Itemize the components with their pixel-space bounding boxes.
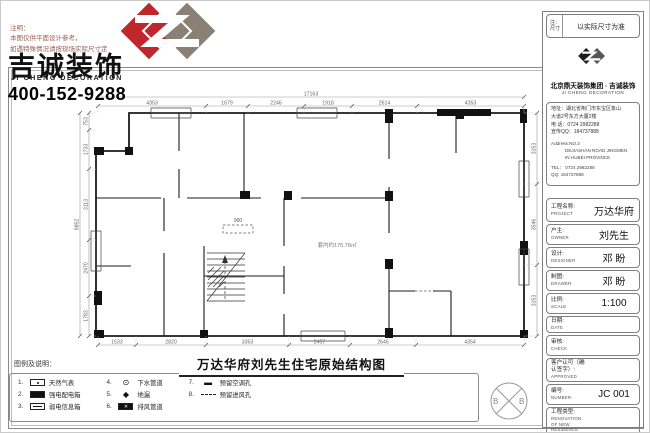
drain-pipe-icon: ⊙ bbox=[118, 379, 133, 386]
legend-item-label: 预留进风孔 bbox=[220, 390, 251, 399]
field-value: 刘先生 bbox=[589, 227, 639, 242]
titleblock-field: 审核:CHECK bbox=[546, 335, 640, 356]
titleblock-field: 工程名称:PROJECT万达华府 bbox=[546, 198, 640, 222]
ac-hole-icon: ▬ bbox=[201, 379, 216, 386]
dim-label: 3113 bbox=[84, 199, 90, 210]
titleblock-field: 日期:DATE bbox=[546, 316, 640, 333]
titleblock-note: 注：尺寸 以实际尺寸为准 bbox=[546, 14, 640, 38]
legend-column: 4.⊙下水管道5.◆地漏6.✕排风管道 bbox=[106, 378, 162, 421]
tel-en-line: TEL： 0724 2982288 bbox=[551, 164, 635, 171]
qq-line: 宣传QQ：184737888 bbox=[551, 129, 635, 137]
dim-label: 1733 bbox=[84, 144, 90, 156]
legend-item-label: 地漏 bbox=[137, 390, 150, 399]
dim-label: 4353 bbox=[465, 101, 477, 107]
legend-item-label: 排风管道 bbox=[137, 402, 162, 411]
floor-drain-icon: ◆ bbox=[118, 391, 133, 398]
titleblock-logo: 北京鼎天装饰集团 · 吉诚装饰 JI CHENG DECORATION bbox=[543, 40, 643, 100]
field-label-en: RENOVATION OF NEW RESIDENCE bbox=[551, 416, 589, 433]
dimension-layer: 4353167922461918261443531533282033532457… bbox=[75, 92, 540, 348]
titleblock-field: 设计:DESIGNER邓 盼 bbox=[546, 247, 640, 268]
legend-item-number: 5. bbox=[106, 391, 114, 398]
dim-label: 2614 bbox=[379, 101, 391, 107]
note-label: 注：尺寸 bbox=[547, 15, 563, 37]
field-label-en: DESIGNER bbox=[551, 258, 589, 264]
field-label-en: DATE bbox=[551, 325, 589, 331]
field-label: 工程类型:RENOVATION OF NEW RESIDENCE bbox=[547, 407, 589, 433]
exhaust-duct-icon: ✕ bbox=[118, 403, 133, 410]
dim-label: 17163 bbox=[304, 92, 319, 98]
info-box-icon bbox=[30, 403, 45, 410]
group-name: 北京鼎天装饰集团 · 吉诚装饰 bbox=[543, 80, 643, 90]
drawing-sheet: 900 套内约175.78㎡ 4353167922461918261443531… bbox=[0, 0, 650, 433]
field-label-cn: 户主: bbox=[551, 228, 589, 235]
legend-item: 8.预留进风孔 bbox=[189, 390, 251, 399]
legend-item-number: 7. bbox=[189, 379, 197, 386]
field-label-en: APPROVED bbox=[551, 374, 589, 380]
field-label: 制图:DRAWER bbox=[547, 272, 589, 288]
dim-label: 1533 bbox=[111, 340, 123, 346]
opening-dim-label: 900 bbox=[234, 218, 243, 224]
field-value: 邓 盼 bbox=[589, 250, 639, 265]
legend-item: 4.⊙下水管道 bbox=[106, 378, 162, 387]
address-line: 地址：湖北省荆门市东宝区象山 bbox=[551, 106, 635, 114]
titleblock-field: 制图:DRAWER邓 盼 bbox=[546, 270, 640, 291]
windows bbox=[91, 108, 529, 341]
dim-label: 1918 bbox=[322, 101, 334, 107]
field-value: 1:100 bbox=[589, 298, 639, 309]
field-value: 万达华府 bbox=[589, 203, 639, 218]
walls bbox=[96, 113, 524, 336]
company-logo-small-icon bbox=[576, 42, 610, 74]
legend-item: 1.天然气表 bbox=[18, 378, 80, 387]
dim-label: 2457 bbox=[314, 340, 326, 346]
field-label: 比例:SCALE bbox=[547, 295, 589, 311]
legend-item: 7.▬预留空调孔 bbox=[189, 378, 251, 387]
dim-label: 9852 bbox=[75, 219, 81, 231]
field-label-cn: 日期: bbox=[551, 318, 589, 325]
legend-item-label: 强电配电箱 bbox=[49, 390, 80, 399]
field-label-en: CHECK bbox=[551, 346, 589, 352]
legend-item-label: 弱电信息箱 bbox=[49, 402, 80, 411]
legend-item-label: 预留空调孔 bbox=[220, 378, 251, 387]
legend-column: 1.天然气表2.强电配电箱3.弱电信息箱 bbox=[18, 378, 80, 421]
legend-column: 7.▬预留空调孔8.预留进风孔 bbox=[189, 378, 251, 421]
dim-label: 4353 bbox=[146, 101, 158, 107]
field-label: 设计:DESIGNER bbox=[547, 249, 589, 265]
dim-label: 753 bbox=[84, 117, 90, 126]
power-box-icon bbox=[30, 391, 45, 398]
company-phone: 400-152-9288 bbox=[8, 84, 126, 105]
legend-item-number: 3. bbox=[18, 403, 26, 410]
field-label-cn: 编号: bbox=[551, 388, 589, 395]
dim-label: 2470 bbox=[84, 262, 90, 274]
titleblock-fields: 工程名称:PROJECT万达华府户主:OWNER刘先生设计:DESIGNER邓 … bbox=[543, 196, 643, 433]
dim-label: 2820 bbox=[165, 340, 177, 346]
legend-item-label: 天然气表 bbox=[49, 378, 74, 387]
qq-en-line: QQ: 184737888 bbox=[551, 171, 635, 178]
group-name-en: JI CHENG DECORATION bbox=[543, 90, 643, 95]
address-en-line: IN HUBEI PROVINCE bbox=[551, 154, 635, 161]
titleblock-field: 工程类型:RENOVATION OF NEW RESIDENCE bbox=[546, 407, 640, 433]
field-label: 户主:OWNER bbox=[547, 226, 589, 242]
dim-label: 2246 bbox=[270, 101, 282, 107]
field-label: 编号:NUMBER bbox=[547, 386, 589, 402]
dim-label: 3153 bbox=[532, 295, 538, 307]
legend-item: 6.✕排风管道 bbox=[106, 402, 162, 411]
titleblock-field: 编号:NUMBERJC 001 bbox=[546, 384, 640, 405]
titleblock-field: 客户认可（确认签字）:APPROVED bbox=[546, 358, 640, 382]
gas-meter-icon bbox=[30, 379, 45, 386]
dim-label: 2646 bbox=[377, 340, 389, 346]
titleblock-field: 户主:OWNER刘先生 bbox=[546, 224, 640, 245]
field-label: 工程名称:PROJECT bbox=[547, 202, 589, 218]
compass-stamp-icon: B B bbox=[487, 379, 531, 423]
title-block: 注：尺寸 以实际尺寸为准 北京鼎天装饰集团 · 吉诚装饰 JI CHENG DE… bbox=[542, 11, 644, 428]
field-label: 日期:DATE bbox=[547, 316, 589, 332]
legend-item-number: 2. bbox=[18, 391, 26, 398]
dim-label: 3546 bbox=[532, 219, 538, 231]
dashed-openings bbox=[223, 225, 433, 291]
legend-item-number: 6. bbox=[106, 403, 114, 410]
address-block: 地址：湖北省荆门市东宝区象山 大道2号东方大厦2楼 电 话：0724 29822… bbox=[546, 102, 640, 186]
legend-item: 2.强电配电箱 bbox=[18, 390, 80, 399]
field-label-cn: 比例: bbox=[551, 297, 589, 304]
address-line: 大道2号东方大厦2楼 bbox=[551, 114, 635, 122]
field-label-en: NUMBER bbox=[551, 395, 589, 401]
titleblock-field: 比例:SCALE1:100 bbox=[546, 293, 640, 314]
legend-item-number: 4. bbox=[106, 379, 114, 386]
field-label-cn: 审核: bbox=[551, 339, 589, 346]
legend-title: 图例及说明： bbox=[14, 359, 56, 369]
legend-item-number: 1. bbox=[18, 379, 26, 386]
field-value: 邓 盼 bbox=[589, 273, 639, 288]
field-label-cn: 工程名称: bbox=[551, 204, 589, 211]
field-label-en: PROJECT bbox=[551, 211, 589, 217]
address-en-line: DEJIASHAN ROAD JINGMEN bbox=[551, 147, 635, 154]
field-label-en: SCALE bbox=[551, 304, 589, 310]
legend-item-number: 8. bbox=[189, 391, 197, 398]
company-name-en: JI CHENG DECORATION bbox=[11, 75, 123, 82]
dim-label: 4354 bbox=[464, 340, 476, 346]
legend-item-label: 下水管道 bbox=[137, 378, 162, 387]
dim-label: 3353 bbox=[242, 340, 254, 346]
svg-text:B: B bbox=[493, 397, 498, 406]
field-label-cn: 制图: bbox=[551, 274, 589, 281]
svg-text:B: B bbox=[519, 397, 524, 406]
air-inlet-icon bbox=[201, 394, 216, 395]
note-value: 以实际尺寸为准 bbox=[563, 21, 639, 31]
address-en-line: Address:NO.2 bbox=[551, 140, 635, 147]
stairs bbox=[207, 253, 245, 301]
company-logo-icon bbox=[113, 3, 233, 73]
legend-box: 1.天然气表2.强电配电箱3.弱电信息箱4.⊙下水管道5.◆地漏6.✕排风管道7… bbox=[9, 373, 479, 422]
dim-label: 1783 bbox=[84, 310, 90, 322]
field-label-cn: 客户认可（确认签字）: bbox=[551, 360, 589, 374]
field-label-cn: 工程类型: bbox=[551, 409, 589, 416]
area-label: 套内约175.78㎡ bbox=[318, 241, 357, 249]
legend-item: 5.◆地漏 bbox=[106, 390, 162, 399]
dim-label: 3153 bbox=[532, 143, 538, 155]
field-value: JC 001 bbox=[589, 389, 639, 400]
field-label-cn: 设计: bbox=[551, 251, 589, 258]
field-label: 客户认可（确认签字）:APPROVED bbox=[547, 358, 589, 381]
dim-label: 1679 bbox=[221, 101, 233, 107]
legend-item: 3.弱电信息箱 bbox=[18, 402, 80, 411]
field-label: 审核:CHECK bbox=[547, 337, 589, 353]
drawing-title: 万达华府刘先生住宅原始结构图 bbox=[179, 354, 404, 377]
shear-walls bbox=[94, 109, 528, 338]
field-label-en: DRAWER bbox=[551, 281, 589, 287]
field-label-en: OWNER bbox=[551, 235, 589, 241]
